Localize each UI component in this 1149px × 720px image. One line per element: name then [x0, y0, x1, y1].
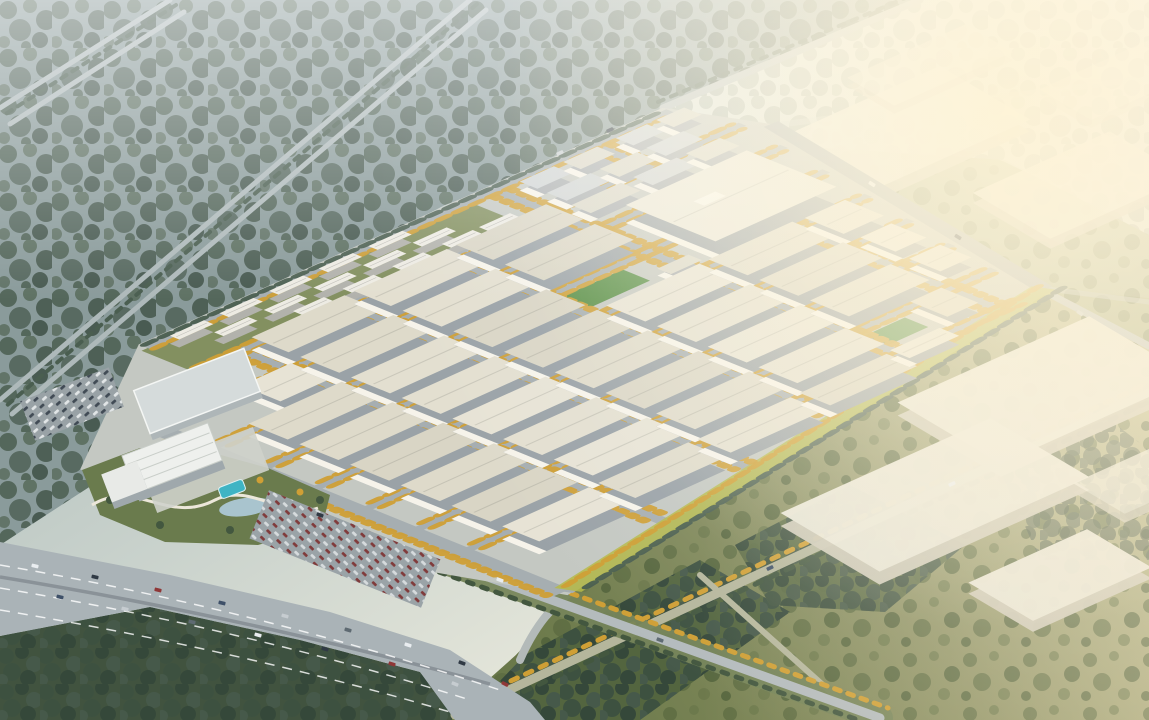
aerial-rendering-viewport [0, 0, 1149, 720]
atmosphere [0, 0, 1149, 720]
industrial-park-aerial-rendering [0, 0, 1149, 720]
warm-light-tint [700, 0, 1149, 720]
